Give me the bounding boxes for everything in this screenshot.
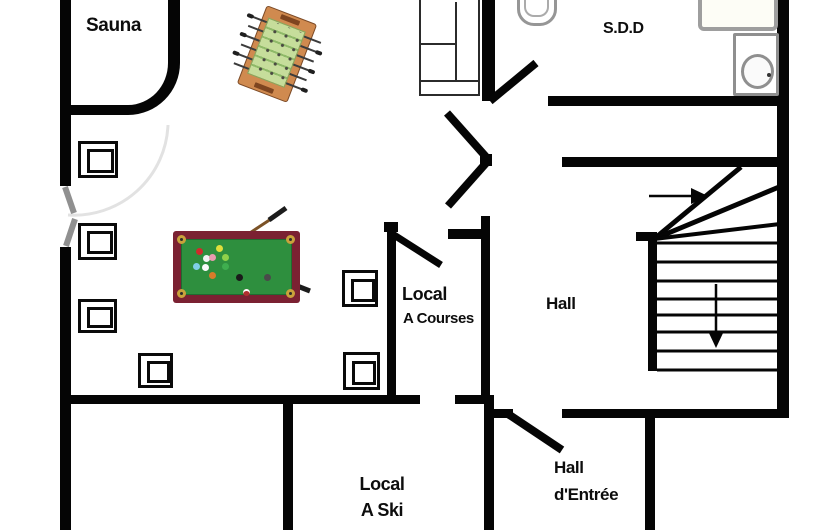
floor-plan: Sauna S.D.D Hall Local A Courses Local A… <box>0 0 840 530</box>
entry-door-swing <box>508 414 562 450</box>
pool-ball <box>193 263 200 270</box>
stool-inner <box>87 149 114 173</box>
room-label-local-courses-1: Local <box>402 285 447 303</box>
room-label-hall-entree-2: d'Entrée <box>554 486 618 503</box>
pool-pocket <box>177 235 186 244</box>
pool-ball <box>243 289 250 296</box>
stool-inner <box>87 231 113 254</box>
pool-ball <box>236 274 243 281</box>
room-label-hall-entree-1: Hall <box>554 459 584 476</box>
shower <box>698 0 778 31</box>
pool-cue-1-handle <box>269 208 286 220</box>
sofa-back-line <box>455 2 457 80</box>
double-door-leaf-top <box>447 113 487 158</box>
toilet-bowl <box>524 0 549 17</box>
pool-pocket <box>286 235 295 244</box>
room-label-sdd: S.D.D <box>603 21 644 37</box>
stool-inner <box>147 361 170 383</box>
square-stool <box>78 299 117 333</box>
pool-ball <box>264 274 271 281</box>
room-label-local-ski-2: A Ski <box>357 501 407 519</box>
pool-table <box>173 231 300 303</box>
stair-down-arrow-head <box>708 331 724 348</box>
square-stool <box>78 141 118 178</box>
stool-inner <box>351 279 375 302</box>
square-stool <box>138 353 173 388</box>
square-stool <box>342 270 378 307</box>
pool-ball <box>209 254 216 261</box>
courses-door-swing <box>394 235 441 265</box>
room-label-hall: Hall <box>546 295 576 312</box>
stool-inner <box>87 307 113 328</box>
room-label-local-courses-2: A Courses <box>403 311 474 326</box>
pool-ball <box>209 272 216 279</box>
pool-pocket <box>177 289 186 298</box>
room-label-local-ski-1: Local <box>357 475 407 493</box>
pool-ball <box>216 245 223 252</box>
pool-ball <box>202 264 209 271</box>
pool-pocket <box>286 289 295 298</box>
square-stool <box>78 223 117 260</box>
pool-ball <box>196 248 203 255</box>
window-mark-2 <box>66 219 75 246</box>
washbasin <box>733 33 779 96</box>
room-label-sauna: Sauna <box>86 16 141 35</box>
double-door-leaf-bottom <box>448 162 487 206</box>
sofa-seat-line <box>421 43 457 45</box>
double-door-pivot <box>480 154 492 166</box>
stool-inner <box>352 361 376 385</box>
washbasin-bowl <box>741 54 774 89</box>
sofa-armrest <box>419 80 480 96</box>
sdd-door-swing <box>490 63 536 101</box>
washbasin-faucet <box>767 73 771 77</box>
window-mark-1 <box>65 187 74 213</box>
pool-ball <box>222 263 229 270</box>
square-stool <box>343 352 380 390</box>
pool-ball <box>222 254 229 261</box>
